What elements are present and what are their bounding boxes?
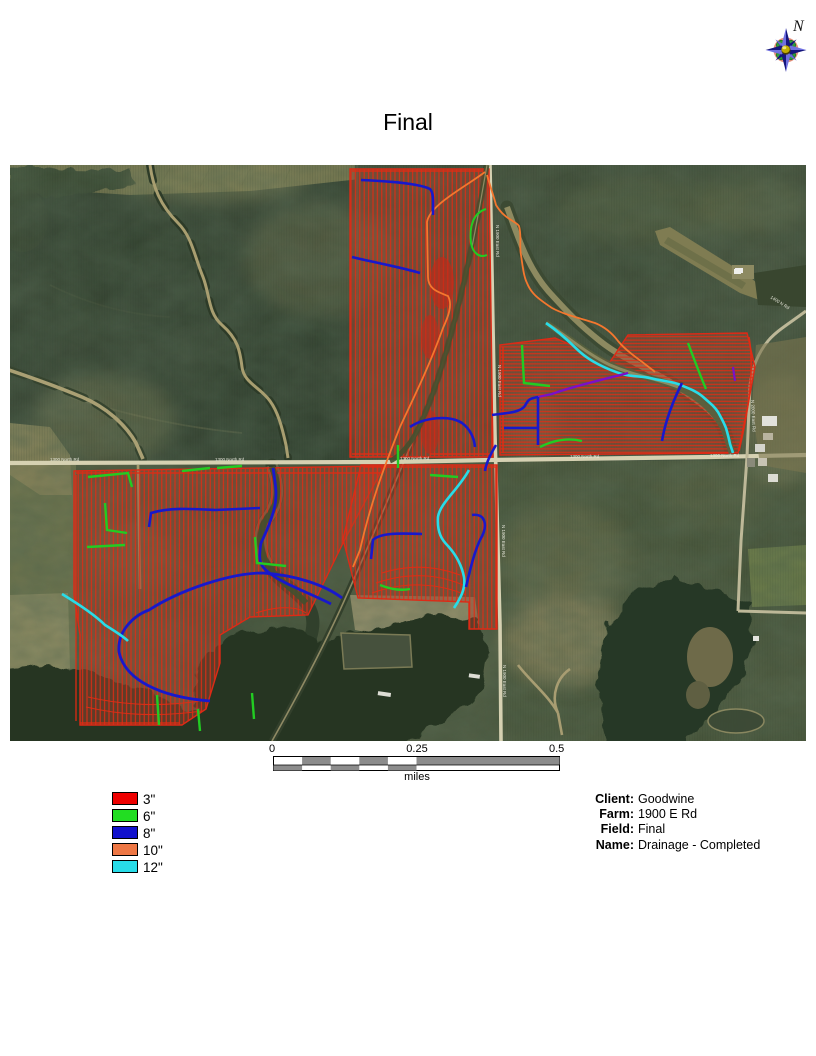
svg-text:1300 North Rd: 1300 North Rd [215,457,245,462]
svg-text:1300 North Rd: 1300 North Rd [710,453,740,458]
svg-text:1300 North Rd: 1300 North Rd [400,456,430,461]
svg-text:N: N [792,18,805,35]
svg-text:N 1900 East Rd: N 1900 East Rd [501,525,506,557]
svg-text:1300 North Rd: 1300 North Rd [570,454,600,459]
svg-text:N 1900 East Rd: N 1900 East Rd [502,665,507,697]
svg-text:N 1900 East Rd: N 1900 East Rd [495,225,500,257]
svg-text:1300 North Rd: 1300 North Rd [50,457,80,462]
svg-text:N 1900 East Rd: N 1900 East Rd [497,365,502,397]
